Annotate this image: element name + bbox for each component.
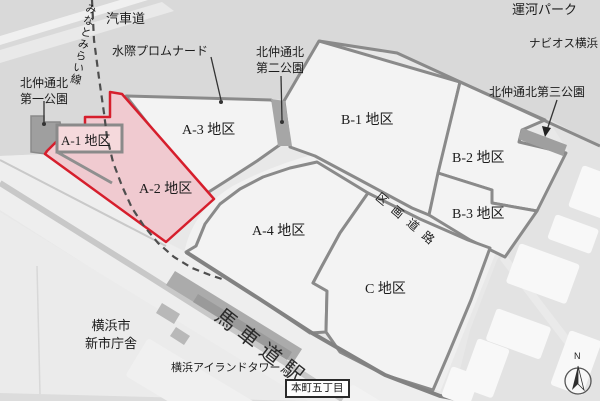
district-c-label: C 地区 (365, 281, 406, 299)
park3-label: 北仲通北第三公園 (489, 85, 585, 101)
district-b2-label: B-2 地区 (452, 150, 505, 168)
honcho-label: 本町五丁目 (291, 383, 344, 394)
unga-park-label: 運河パーク (512, 2, 577, 19)
district-plan-map: 汽車道 みなとみらい線 水際プロムナード 北仲通北 第一公園 北仲通北 第二公園… (0, 0, 600, 401)
district-b1-label: B-1 地区 (341, 112, 394, 130)
kishamichi-label: 汽車道 (106, 11, 145, 28)
suigiwa-promenade-label: 水際プロムナード (112, 44, 208, 60)
leader-dot-promenade (219, 100, 223, 104)
district-a1-label: A-1 地区 (61, 133, 110, 150)
honcho-label-box: 本町五丁目 (285, 379, 350, 398)
cityhall-label: 横浜市 新市庁舎 (80, 317, 142, 353)
navios-label: ナビオス横浜 (529, 37, 598, 52)
compass-n-label: N (574, 351, 581, 363)
district-a3-label: A-3 地区 (182, 122, 235, 140)
leader-dot-park2 (280, 120, 284, 124)
leader-dot-park1 (42, 122, 46, 126)
district-a2-label: A-2 地区 (139, 181, 192, 199)
island-tower-label: 横浜アイランドタワー (171, 361, 280, 375)
park2-label: 北仲通北 第二公園 (256, 45, 304, 76)
park1-label: 北仲通北 第一公園 (20, 76, 68, 107)
district-b3-label: B-3 地区 (452, 206, 505, 224)
district-a4-label: A-4 地区 (252, 223, 305, 241)
